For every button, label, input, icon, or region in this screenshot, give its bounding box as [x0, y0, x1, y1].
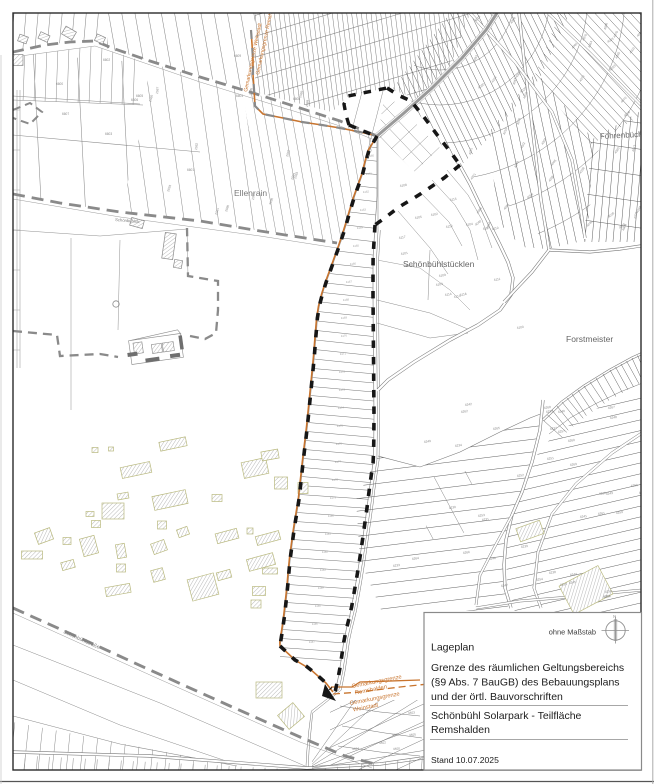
svg-text:Forstmeister: Forstmeister: [566, 334, 613, 344]
svg-text:4164: 4164: [357, 225, 364, 230]
svg-text:4161: 4161: [366, 171, 373, 176]
svg-text:6606: 6606: [131, 98, 138, 102]
svg-text:2091: 2091: [251, 192, 256, 200]
svg-text:und der örtl. Bauvorschriften: und der örtl. Bauvorschriften: [431, 691, 563, 703]
svg-text:4402: 4402: [379, 740, 387, 745]
svg-text:6607: 6607: [62, 112, 69, 116]
svg-text:4168: 4168: [343, 297, 350, 302]
svg-text:(§9 Abs. 7 BauGB) des Bebauung: (§9 Abs. 7 BauGB) des Bebauungsplans: [431, 677, 620, 689]
svg-text:Remshalden: Remshalden: [431, 724, 490, 736]
svg-text:4169: 4169: [341, 315, 348, 320]
svg-text:Lageplan: Lageplan: [431, 642, 474, 654]
svg-text:4166: 4166: [350, 261, 357, 266]
svg-text:4172: 4172: [339, 369, 346, 374]
svg-text:4185: 4185: [315, 603, 322, 608]
svg-text:4170: 4170: [341, 333, 348, 338]
svg-text:Stand 10.07.2025: Stand 10.07.2025: [431, 755, 499, 765]
svg-text:6608: 6608: [293, 97, 300, 101]
svg-text:4400: 4400: [393, 746, 401, 751]
svg-text:4175: 4175: [337, 423, 344, 428]
svg-text:6600: 6600: [56, 82, 63, 86]
svg-text:6603: 6603: [105, 132, 112, 136]
svg-text:6604: 6604: [236, 94, 243, 98]
svg-text:Grenze des räumlichen Geltungs: Grenze des räumlichen Geltungsbereichs: [431, 662, 624, 674]
svg-text:ohne Maßstab: ohne Maßstab: [549, 628, 596, 637]
svg-text:6609: 6609: [234, 54, 241, 58]
svg-text:4181: 4181: [325, 531, 332, 536]
svg-text:N: N: [613, 614, 616, 619]
svg-text:Schönbühl Solarpark - Teilfläc: Schönbühl Solarpark - Teilfläche: [431, 710, 582, 722]
svg-text:4178: 4178: [332, 477, 339, 482]
svg-text:4174: 4174: [338, 405, 345, 410]
svg-text:4186: 4186: [312, 621, 319, 626]
svg-text:4180: 4180: [328, 513, 335, 518]
svg-text:4404: 4404: [352, 746, 360, 751]
svg-text:4405: 4405: [409, 732, 417, 737]
svg-text:Schönbühlstücklen: Schönbühlstücklen: [403, 259, 475, 269]
svg-text:4160: 4160: [368, 153, 375, 158]
svg-text:4401: 4401: [392, 732, 400, 737]
svg-text:4182: 4182: [322, 549, 329, 554]
svg-text:4183: 4183: [320, 567, 327, 572]
svg-text:6602: 6602: [103, 58, 110, 62]
svg-text:4167: 4167: [346, 279, 353, 284]
svg-text:6601: 6601: [187, 168, 194, 172]
svg-text:4165: 4165: [353, 243, 360, 248]
svg-text:4162: 4162: [363, 189, 370, 194]
svg-text:4173: 4173: [339, 387, 346, 392]
svg-text:4187: 4187: [309, 639, 316, 644]
svg-text:4403: 4403: [408, 710, 416, 715]
svg-text:4179: 4179: [330, 495, 337, 500]
svg-text:4184: 4184: [318, 585, 325, 590]
svg-text:4177: 4177: [335, 459, 342, 464]
svg-text:4171: 4171: [340, 351, 347, 356]
svg-text:2088: 2088: [305, 99, 310, 107]
svg-text:4176: 4176: [336, 441, 343, 446]
svg-text:4163: 4163: [360, 207, 367, 212]
svg-text:2087: 2087: [155, 86, 160, 94]
